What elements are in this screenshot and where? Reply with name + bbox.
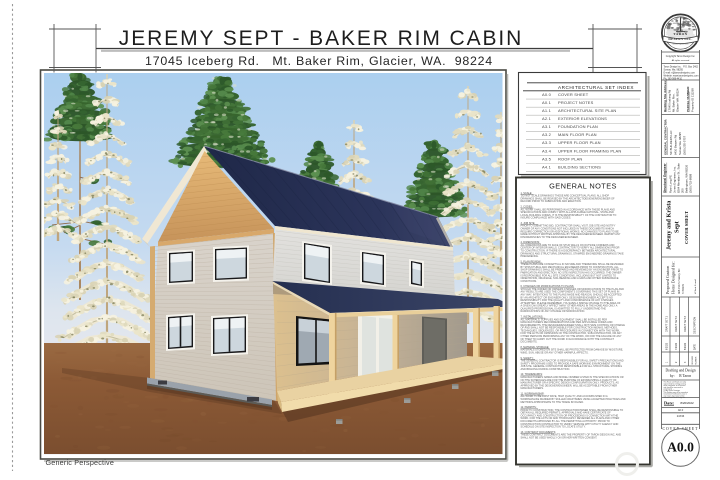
- svg-text:A0.0: A0.0: [542, 92, 552, 97]
- svg-text:Jeremy and Krista: Jeremy and Krista: [666, 201, 673, 250]
- svg-text:A3.5: A3.5: [542, 156, 552, 161]
- svg-text:Structural Engineer: Structural Engineer: [663, 163, 667, 193]
- svg-text:17045 Iceberg Rd. Mt. Baker: 17045 Iceberg Rd. Mt. Baker Rim, Glacier…: [145, 54, 493, 68]
- svg-text:PROJECT NOTES: PROJECT NOTES: [558, 100, 594, 105]
- svg-text:UPPER FLOOR PLAN: UPPER FLOOR PLAN: [558, 140, 601, 145]
- svg-text:DOCUMENTS.: DOCUMENTS.: [521, 341, 538, 344]
- svg-text:TARON: TARON: [673, 32, 688, 36]
- svg-text:COVER SHEET: COVER SHEET: [558, 92, 589, 97]
- svg-text:Sumas, Wa. 98295: Sumas, Wa. 98295: [664, 70, 684, 72]
- svg-text:24X36: 24X36: [677, 414, 685, 418]
- svg-text:Date:: Date:: [664, 401, 675, 406]
- svg-text:tarondesigninc.com: tarondesigninc.com: [673, 43, 689, 46]
- svg-text:DRAFT SET 3: DRAFT SET 3: [684, 316, 687, 332]
- svg-text:Taron Design Inc. P.O. Box 2: Taron Design Inc. P.O. Box 2462: [664, 66, 699, 69]
- svg-text:8/2022: 8/2022: [685, 342, 687, 350]
- svg-text:UPPER FLOOR FRAMING PLAN: UPPER FLOOR FRAMING PLAN: [558, 148, 621, 153]
- svg-text:(360) 733-8988: (360) 733-8988: [689, 173, 693, 193]
- svg-text:Proposed Custom: Proposed Custom: [665, 265, 670, 294]
- svg-text:METHODS APPROPRIATE TO THE TRA: METHODS APPROPRIATE TO THE TRADE INVOLVE…: [521, 401, 585, 404]
- svg-text:Sumas Wa. 98295: Sumas Wa. 98295: [678, 132, 682, 155]
- svg-text:NUMBER: NUMBER: [696, 356, 698, 364]
- svg-text:Property ID 111269: Property ID 111269: [691, 88, 695, 112]
- svg-text:A3.2: A3.2: [542, 132, 552, 137]
- svg-text:INSURE COMPLIANCE WITH SAID CO: INSURE COMPLIANCE WITH SAID CODES.: [521, 217, 572, 220]
- svg-text:A0.0: A0.0: [678, 408, 684, 412]
- svg-text:ROOF PLAN: ROOF PLAN: [558, 156, 582, 161]
- svg-text:Drafting and Design: Drafting and Design: [665, 369, 695, 373]
- svg-text:6/2022: 6/2022: [667, 342, 669, 350]
- svg-text:Building Site Address:: Building Site Address:: [663, 80, 667, 112]
- svg-text:SHALL NOT BE USED WHOLLY ON OR: SHALL NOT BE USED WHOLLY ON OR HER WRITT…: [521, 436, 598, 439]
- svg-text:MAIN FLOOR PLAN: MAIN FLOOR PLAN: [558, 132, 597, 137]
- svg-text:A0.1: A0.1: [542, 100, 552, 105]
- svg-text:E-mail: rt@tarondesigninc.com: E-mail: rt@tarondesigninc.com: [664, 72, 696, 75]
- svg-text:DISCREPANCIES TO THE DESIGNER/: DISCREPANCIES TO THE DESIGNER/ENGINEER.: [521, 236, 579, 239]
- svg-text:GENERAL NOTES: GENERAL NOTES: [549, 182, 617, 191]
- svg-text:SC BUILDERS LLC: SC BUILDERS LLC: [669, 130, 673, 155]
- svg-text:Website: www.tarondesigninc.co: Website: www.tarondesigninc.com: [664, 75, 699, 78]
- svg-text:ARCHITECTURAL SET INDEX: ARCHITECTURAL SET INDEX: [558, 85, 634, 90]
- svg-text:V3S0C9: V3S0C9: [681, 283, 685, 294]
- svg-text:REVISION: REVISION: [692, 355, 694, 364]
- svg-text:Copyright Taron Design Inc.: Copyright Taron Design Inc.: [666, 55, 696, 58]
- svg-text:COVER SHEET: COVER SHEET: [684, 211, 689, 244]
- svg-text:DRAFT SET 1: DRAFT SET 1: [666, 316, 669, 332]
- svg-text:6410 Beaver Rd: 6410 Beaver Rd: [674, 134, 678, 155]
- svg-text:A2.1: A2.1: [542, 116, 552, 121]
- svg-text:by: R Taron: by: R Taron: [670, 374, 691, 378]
- svg-text:A0.0: A0.0: [667, 440, 694, 455]
- svg-text:Home Designed for:: Home Designed for:: [671, 261, 676, 294]
- svg-text:RECORD PRIOR TO FABRICATION AN: RECORD PRIOR TO FABRICATION AND ERECTION…: [521, 200, 582, 203]
- svg-text:RAMIFICATIONS OF ANY CHANGE OR: RAMIFICATIONS OF ANY CHANGE OR MODIFICAT…: [521, 310, 586, 313]
- svg-text:BUILDING SECTIONS: BUILDING SECTIONS: [558, 164, 601, 169]
- svg-text:EXTERIOR ELEVATIONS: EXTERIOR ELEVATIONS: [558, 116, 607, 121]
- svg-text:A4.1: A4.1: [542, 164, 552, 169]
- svg-text:JEREMY SEPT - BAKER RIM CABIN: JEREMY SEPT - BAKER RIM CABIN: [119, 27, 523, 50]
- svg-text:#Client E-mail: #Client E-mail: [694, 279, 697, 294]
- svg-text:A1.1: A1.1: [542, 108, 552, 113]
- svg-text:WIND, SUN, ABUSE OR ANY OTHER: WIND, SUN, ABUSE OR ANY OTHER HARMFUL AF…: [521, 351, 589, 354]
- svg-text:AND BRACING DURING CONSTRUCTIO: AND BRACING DURING CONSTRUCTION.: [521, 368, 571, 371]
- svg-text:ARCHITECTURAL SITE PLAN: ARCHITECTURAL SITE PLAN: [558, 108, 616, 113]
- svg-text:A3.3: A3.3: [542, 140, 552, 145]
- svg-text:(360) 255-5757: (360) 255-5757: [683, 135, 687, 155]
- svg-text:A3.1: A3.1: [542, 124, 552, 129]
- svg-text:SCHEDULE ON SITE INSPECTION TO: SCHEDULE ON SITE INSPECTION TO LOCATE UT…: [521, 426, 587, 429]
- svg-text:7/2022: 7/2022: [676, 342, 678, 350]
- svg-text:Generic Perspective: Generic Perspective: [46, 458, 115, 467]
- svg-text:DATE: DATE: [694, 344, 697, 350]
- svg-text:PRECEDENCE.: PRECEDENCE.: [521, 255, 539, 258]
- svg-text:CONDITIONS.: CONDITIONS.: [521, 280, 538, 283]
- svg-text:FOUNDATION PLAN: FOUNDATION PLAN: [558, 124, 598, 129]
- svg-text:GENERAL CONTRACTOR:: GENERAL CONTRACTOR:: [664, 119, 668, 155]
- svg-text:Sept: Sept: [674, 220, 681, 233]
- svg-text:DESIGN INC.: DESIGN INC.: [668, 37, 692, 41]
- svg-text:MANUFACTURERS.: MANUFACTURERS.: [521, 387, 545, 390]
- svg-text:Glacier WA. 98224: Glacier WA. 98224: [676, 88, 680, 112]
- svg-text:8/20/2022: 8/20/2022: [680, 401, 694, 405]
- svg-text:PARCEL NUMBER:: PARCEL NUMBER:: [686, 86, 690, 112]
- svg-text:DRAFT SET 2: DRAFT SET 2: [675, 316, 678, 332]
- svg-text:All rights reserved: All rights reserved: [672, 59, 690, 62]
- svg-text:DESCRIPTION: DESCRIPTION: [694, 317, 697, 334]
- svg-text:A3.4: A3.4: [542, 148, 552, 153]
